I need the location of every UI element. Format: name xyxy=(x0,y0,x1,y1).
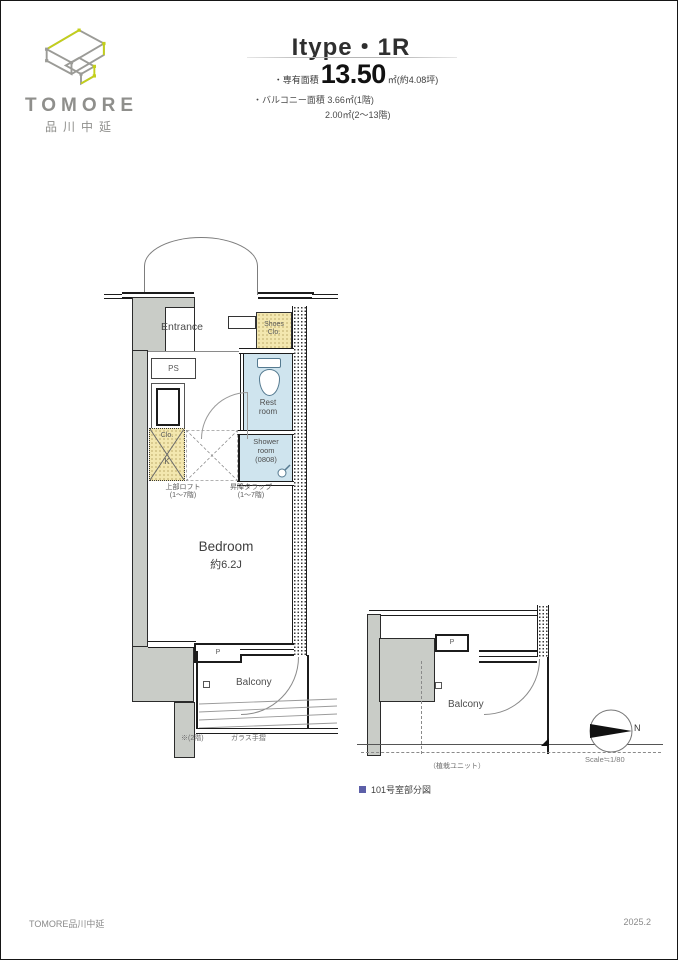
floorplan-page: TOMORE 品川中延 Itype・1R ・専有面積 13.50 ㎡(約4.08… xyxy=(0,0,678,960)
shoes-closet: Shoes Clo. xyxy=(256,312,292,349)
balcony-label: Balcony xyxy=(236,677,300,688)
area-suffix: ㎡(約4.08坪) xyxy=(388,73,439,86)
logo-subtitle: 品川中延 xyxy=(25,118,137,135)
balcony-note-left: ※(2階) xyxy=(181,733,215,743)
wall-hatched xyxy=(537,605,549,657)
balcony-value2: 2.00㎡(2〜13階) xyxy=(325,108,467,121)
title-divider xyxy=(247,57,457,58)
scale-label: Scale≒1/80 xyxy=(585,755,649,764)
restroom-label-2: room xyxy=(244,407,292,416)
shower-room: Shower room (0808) xyxy=(238,435,292,481)
wall-concrete xyxy=(132,646,194,702)
loft-note-line2: (1〜7階) xyxy=(151,492,215,500)
balcony-deck-lines xyxy=(199,697,337,731)
drain-box xyxy=(203,681,210,688)
area-value: 13.50 xyxy=(321,59,386,90)
north-label: N xyxy=(634,723,648,733)
wall-concrete xyxy=(132,350,148,648)
wall-segment xyxy=(312,294,338,299)
shoe-counter xyxy=(228,316,256,329)
wall-concrete xyxy=(379,638,435,702)
balcony-area-row: ・バルコニー面積 3.66㎡(1階) 2.00㎡(2〜13階) xyxy=(253,93,467,121)
pillar-box-partial: P xyxy=(435,634,469,652)
ladder-note-line1: 昇降タラップ xyxy=(217,484,285,492)
caption-bullet-square xyxy=(359,786,366,793)
shower-label-2: room xyxy=(240,446,292,455)
wall-concrete xyxy=(174,702,195,758)
ps-label: PS xyxy=(152,359,195,378)
drain-box-partial xyxy=(435,682,442,689)
bedroom-size-label: 約6.2J xyxy=(176,556,276,572)
toilet-bowl xyxy=(259,369,280,396)
wall-segment xyxy=(258,292,314,299)
entrance-label: Entrance xyxy=(161,321,231,333)
shoes-closet-label-2: Clo. xyxy=(257,329,291,337)
railing-post-mark xyxy=(541,738,549,746)
window-rail-line xyxy=(240,649,294,650)
balcony-value1: 3.66㎡(1階) xyxy=(327,95,374,105)
washer-box xyxy=(156,388,180,426)
ladder-note-line2: (1〜7階) xyxy=(217,492,285,500)
shower-label-3: (0808) xyxy=(240,455,292,464)
balcony-label-partial: Balcony xyxy=(448,699,512,710)
partial-plan-caption: 101号室部分図 xyxy=(371,783,501,796)
ps-box: PS xyxy=(151,358,196,379)
ground-note: （植栽ユニット） xyxy=(429,761,501,771)
restroom-label-1: Rest xyxy=(244,398,292,407)
ladder-note: 昇降タラップ (1〜7階) xyxy=(217,484,285,500)
toilet-tank xyxy=(257,358,281,368)
interior-door-leaf xyxy=(247,392,248,439)
area-row: ・専有面積 13.50 ㎡(約4.08坪) xyxy=(247,59,465,90)
loft-note-line1: 上部ロフト xyxy=(151,484,215,492)
entrance-door-arc xyxy=(144,237,258,295)
balcony-window xyxy=(240,643,294,656)
window-rail-line xyxy=(479,656,537,657)
bedroom-label-group: Bedroom 約6.2J xyxy=(176,539,276,572)
footer-right: 2025.2 xyxy=(589,917,651,927)
restroom: Rest room xyxy=(244,354,292,430)
balcony-wall-line xyxy=(196,651,198,729)
balcony-extent-dashed-line xyxy=(421,661,422,754)
interior-door-arc xyxy=(201,392,248,439)
area-label: ・専有面積 xyxy=(274,73,319,86)
kitchen-label: K xyxy=(150,458,184,466)
loft-note: 上部ロフト (1〜7階) xyxy=(151,484,215,500)
balcony-label: ・バルコニー面積 xyxy=(253,95,325,105)
footer-left: TOMORE品川中延 xyxy=(29,917,209,930)
balcony-line1: ・バルコニー面積 3.66㎡(1階) xyxy=(253,93,467,106)
tomore-logo-mark xyxy=(31,13,131,95)
shower-head-icon xyxy=(277,464,291,478)
north-arrow-icon xyxy=(585,705,641,761)
closet-label: Clo. xyxy=(150,432,184,440)
pillar-box: P xyxy=(194,643,242,663)
logo-brand: TOMORE xyxy=(25,95,137,117)
balcony-note-right: ガラス手摺 xyxy=(231,733,287,743)
wall-segment xyxy=(148,641,196,648)
bedroom-label: Bedroom xyxy=(176,539,276,554)
pillar-label: P xyxy=(196,645,240,661)
wall-segment xyxy=(369,610,539,616)
entrance-step-line xyxy=(148,351,240,352)
wall-hatched xyxy=(292,306,307,656)
shoes-closet-label-1: Shoes xyxy=(257,321,291,329)
closet-box: Clo. K xyxy=(149,428,185,481)
pillar-label-partial: P xyxy=(437,636,467,650)
